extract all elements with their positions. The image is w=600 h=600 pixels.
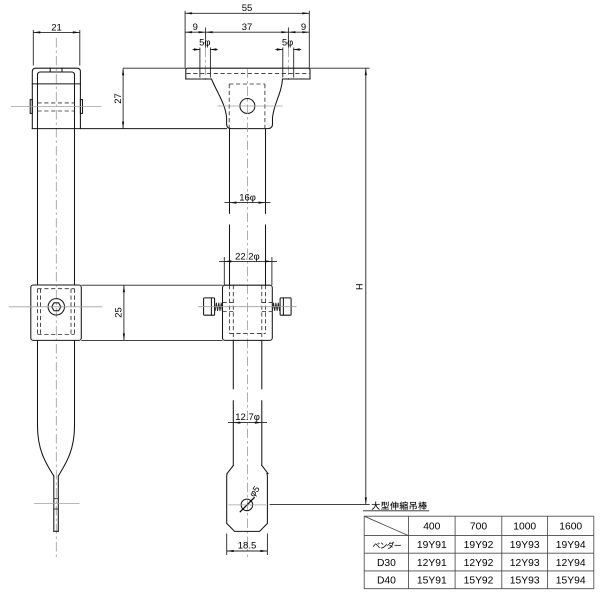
svg-text:15Y93: 15Y93 [510, 576, 540, 587]
svg-text:700: 700 [470, 522, 487, 533]
svg-text:9: 9 [193, 22, 198, 33]
svg-text:12.7φ: 12.7φ [235, 412, 260, 423]
svg-text:19Y93: 19Y93 [510, 540, 540, 551]
svg-text:1000: 1000 [513, 522, 536, 533]
svg-text:15Y94: 15Y94 [556, 576, 586, 587]
svg-text:D40: D40 [377, 576, 396, 587]
svg-text:12Y93: 12Y93 [510, 558, 540, 569]
svg-text:37: 37 [242, 22, 253, 33]
svg-text:9: 9 [301, 22, 306, 33]
svg-text:18.5: 18.5 [238, 541, 257, 552]
svg-text:5φ: 5φ [199, 37, 210, 48]
svg-text:12Y91: 12Y91 [417, 558, 447, 569]
svg-text:19Y91: 19Y91 [417, 540, 447, 551]
svg-text:15Y92: 15Y92 [464, 576, 494, 587]
svg-text:400: 400 [423, 522, 440, 533]
svg-text:5φ: 5φ [282, 37, 293, 48]
svg-text:21: 21 [51, 22, 62, 33]
svg-text:H: H [355, 284, 365, 291]
svg-text:12Y94: 12Y94 [556, 558, 586, 569]
svg-text:25: 25 [114, 307, 125, 318]
svg-text:19Y94: 19Y94 [556, 540, 586, 551]
svg-text:19Y92: 19Y92 [464, 540, 494, 551]
svg-text:15Y91: 15Y91 [417, 576, 447, 587]
svg-text:55: 55 [242, 3, 253, 14]
svg-text:12Y92: 12Y92 [464, 558, 494, 569]
svg-text:D30: D30 [377, 558, 396, 569]
svg-text:16φ: 16φ [239, 192, 256, 203]
svg-text:1600: 1600 [559, 522, 582, 533]
svg-text:22.2φ: 22.2φ [235, 251, 260, 262]
svg-text:27: 27 [113, 93, 124, 104]
